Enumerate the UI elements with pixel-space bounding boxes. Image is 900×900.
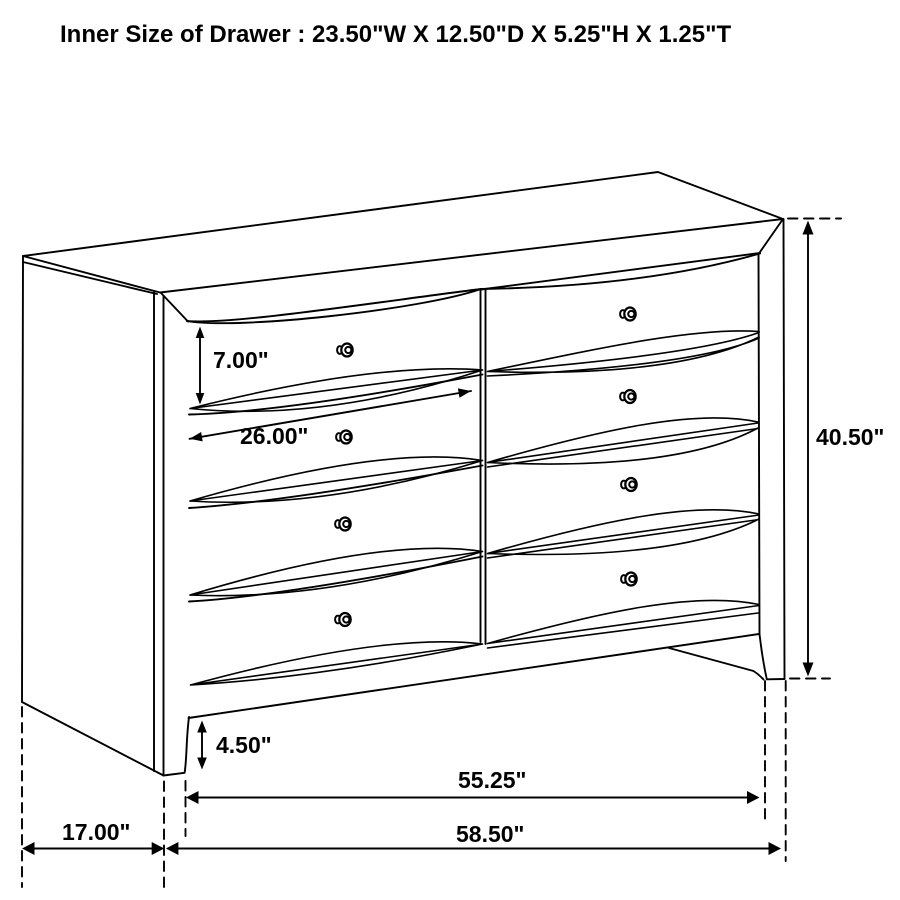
svg-text:4.50": 4.50" [216, 732, 272, 758]
svg-text:40.50": 40.50" [816, 424, 884, 450]
svg-text:17.00": 17.00" [62, 819, 130, 845]
svg-text:7.00": 7.00" [213, 347, 269, 373]
svg-text:Inner Size of Drawer : 23.50"W: Inner Size of Drawer : 23.50"W X 12.50"D… [60, 21, 731, 48]
svg-text:55.25": 55.25" [458, 767, 526, 793]
svg-text:26.00": 26.00" [240, 423, 308, 449]
svg-text:58.50": 58.50" [456, 821, 524, 847]
